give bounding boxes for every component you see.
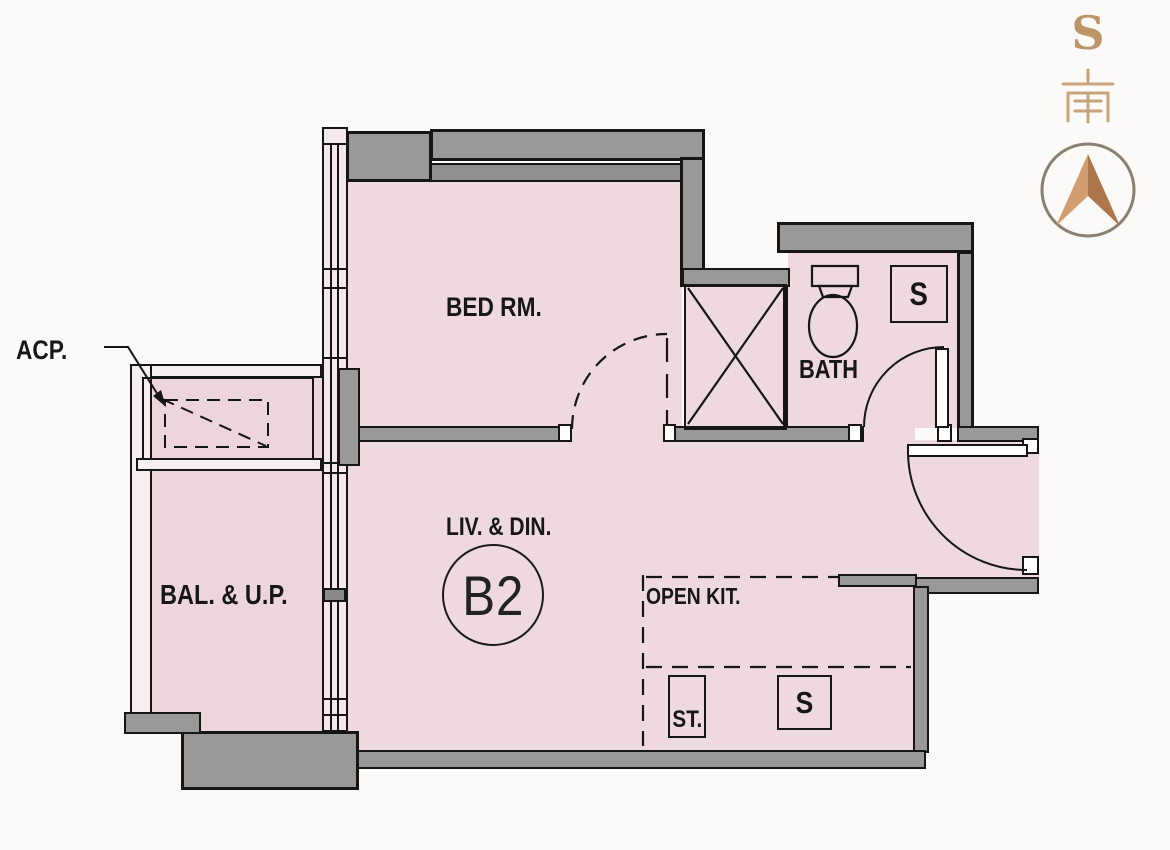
wall-bath-top [777, 222, 974, 253]
wall-kitchen-right [913, 586, 929, 753]
door-stop [1022, 438, 1039, 454]
compass-direction-letter: S [1058, 6, 1118, 60]
living-dining-label: LIV. & DIN. [446, 513, 551, 542]
unit-code: B2 [462, 563, 524, 628]
window-tick [322, 698, 348, 700]
door-stop [937, 424, 952, 442]
wall-shaft-bath-divider [783, 285, 788, 428]
wall-acp-post [338, 368, 360, 466]
storage-box: ST. [668, 675, 706, 738]
wall-column-bottomleft [181, 731, 359, 790]
entry-vestibule-floor [915, 440, 1039, 577]
door-stop [1022, 556, 1039, 575]
window-tick [322, 357, 348, 359]
acp-label: ACP. [16, 335, 67, 366]
window-tick [322, 472, 348, 474]
wall-bedroom-bottom [346, 426, 572, 442]
balcony-label: BAL. & U.P. [160, 579, 288, 611]
bedroom-label: BED RM. [446, 292, 542, 323]
storage-label: ST. [672, 706, 702, 734]
wall-balcony-bottom [124, 712, 201, 734]
door-stop [663, 424, 676, 442]
balcony-divider [136, 458, 322, 471]
wall-column-topleft [346, 131, 432, 182]
wall-bedroom-top-outer [430, 129, 705, 161]
floor-plan: BED RM. LIV. & DIN. B2 BATH BAL. & U.P. … [0, 0, 1170, 850]
compass-icon [1042, 144, 1134, 236]
wall-bedroom-top-inner [430, 163, 702, 182]
door-stop [558, 424, 572, 442]
acp-balustrade [142, 377, 314, 463]
wall-entry-bottom [915, 577, 1039, 594]
window-tick [322, 268, 348, 270]
open-kitchen-label: OPEN KIT. [646, 583, 740, 610]
bath-sink-label: S [910, 276, 928, 313]
window-tick [322, 143, 348, 145]
kitchen-sink-label: S [796, 685, 814, 721]
kitchen-sink-box: S [777, 675, 832, 730]
bath-sink-box: S [890, 265, 948, 323]
window-mullion [330, 145, 332, 731]
balcony-wall-top [130, 364, 322, 378]
compass-hanzi [1063, 70, 1113, 122]
bath-label: BATH [799, 354, 858, 385]
door-stop [848, 424, 862, 442]
wall-kitchen-ledge [838, 574, 917, 587]
window-tick [322, 287, 348, 289]
strip-post [323, 588, 346, 602]
wall-bath-right [957, 251, 974, 442]
window-tick [322, 714, 348, 716]
shaft-enclosure [684, 284, 787, 430]
wall-living-bottom [356, 750, 926, 769]
unit-code-badge: B2 [442, 544, 544, 646]
